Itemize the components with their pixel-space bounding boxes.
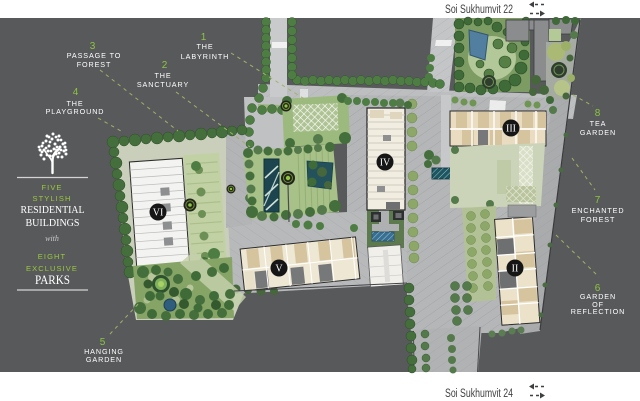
svg-text:BUILDINGS: BUILDINGS <box>26 217 80 229</box>
svg-text:PLAYGROUND: PLAYGROUND <box>46 107 105 116</box>
svg-text:FIVE: FIVE <box>41 183 62 192</box>
svg-text:Soi Sukhumvit 24: Soi Sukhumvit 24 <box>445 388 513 400</box>
svg-text:8: 8 <box>595 108 602 119</box>
svg-text:4: 4 <box>73 87 80 98</box>
svg-text:with: with <box>45 234 59 243</box>
svg-text:FOREST: FOREST <box>581 215 616 224</box>
svg-text:ENCHANTED: ENCHANTED <box>572 206 625 215</box>
svg-text:7: 7 <box>595 195 602 206</box>
svg-text:THE: THE <box>196 42 213 51</box>
svg-text:FOREST: FOREST <box>77 60 112 69</box>
svg-text:VI: VI <box>153 208 164 219</box>
svg-text:THE: THE <box>154 71 171 80</box>
svg-text:EXCLUSIVE: EXCLUSIVE <box>26 264 78 273</box>
svg-text:2: 2 <box>162 60 169 71</box>
svg-text:TEA: TEA <box>590 119 607 128</box>
svg-text:II: II <box>512 264 519 275</box>
svg-text:LABYRINTH: LABYRINTH <box>181 52 229 61</box>
svg-text:EIGHT: EIGHT <box>38 252 66 261</box>
svg-text:STYLISH: STYLISH <box>33 194 72 203</box>
svg-text:Soi Sukhumvit 22: Soi Sukhumvit 22 <box>445 4 513 16</box>
svg-text:IV: IV <box>380 158 391 169</box>
svg-text:SANCTUARY: SANCTUARY <box>137 80 189 89</box>
svg-text:GARDEN: GARDEN <box>86 355 122 364</box>
svg-text:V: V <box>275 264 283 275</box>
svg-text:PASSAGE TO: PASSAGE TO <box>67 51 122 60</box>
svg-text:III: III <box>506 124 516 135</box>
svg-text:GARDEN: GARDEN <box>580 128 616 137</box>
svg-text:RESIDENTIAL: RESIDENTIAL <box>21 204 85 216</box>
svg-text:PARKS: PARKS <box>35 273 70 287</box>
svg-text:REFLECTION: REFLECTION <box>571 307 626 316</box>
